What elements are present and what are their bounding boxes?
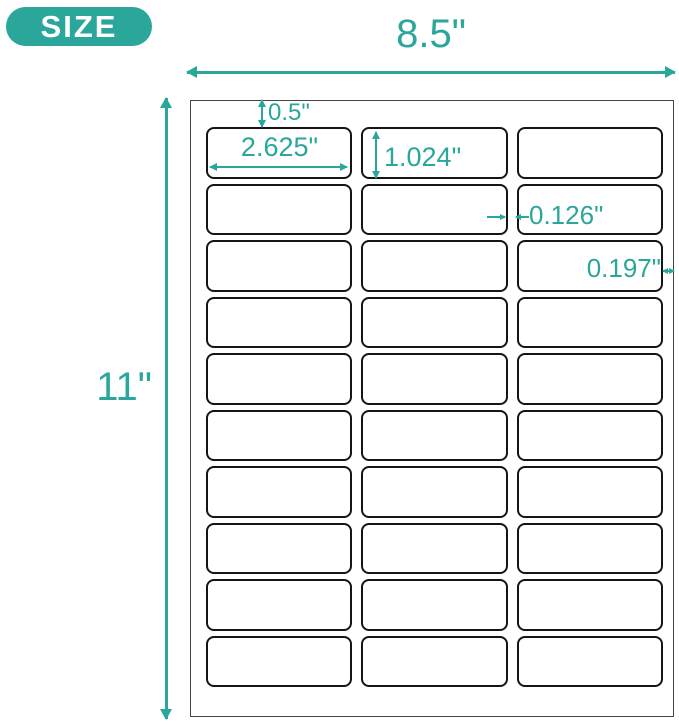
top-margin-arrow-icon — [261, 100, 263, 127]
label-width-label: 2.625" — [206, 134, 353, 161]
sheet-height-arrow-icon — [165, 98, 168, 719]
label-cell — [361, 636, 507, 688]
label-cell — [361, 410, 507, 462]
sheet-height-label: 11" — [58, 367, 152, 407]
size-badge: SIZE — [6, 7, 152, 46]
label-cell — [517, 353, 663, 405]
column-gap-arrow-right-icon — [487, 216, 505, 218]
label-cell — [517, 579, 663, 631]
label-cell — [361, 240, 507, 292]
size-badge-label: SIZE — [41, 9, 118, 45]
label-cell — [361, 297, 507, 349]
label-cell — [517, 466, 663, 518]
right-margin-arrow-icon — [663, 270, 674, 272]
label-height-label: 1.024" — [384, 144, 461, 171]
right-margin-label: 0.197" — [555, 255, 661, 281]
label-cell — [517, 410, 663, 462]
column-gap-arrow-left-icon — [516, 216, 529, 218]
label-cell — [517, 127, 663, 179]
label-cell — [206, 523, 352, 575]
label-cell — [206, 184, 352, 236]
label-cell — [206, 466, 352, 518]
label-width-arrow-icon — [210, 166, 347, 168]
label-cell — [517, 523, 663, 575]
label-cell — [206, 636, 352, 688]
top-margin-label: 0.5" — [268, 101, 310, 125]
label-cell — [206, 297, 352, 349]
label-sheet-size-diagram: SIZE 8.5" 11" 0.5" 2.625" 1.024" 0.126" … — [0, 0, 679, 725]
label-cell — [206, 410, 352, 462]
label-cell — [361, 184, 507, 236]
label-height-arrow-icon — [375, 132, 377, 178]
label-cell — [517, 636, 663, 688]
label-cell — [361, 353, 507, 405]
label-cell — [517, 297, 663, 349]
label-cell — [361, 579, 507, 631]
label-cell — [206, 240, 352, 292]
label-cell — [361, 523, 507, 575]
label-cell — [206, 353, 352, 405]
column-gap-label: 0.126" — [529, 202, 603, 228]
label-cell — [361, 466, 507, 518]
label-cell — [206, 579, 352, 631]
sheet-width-arrow-icon — [187, 71, 675, 74]
sheet-width-label: 8.5" — [187, 14, 675, 54]
